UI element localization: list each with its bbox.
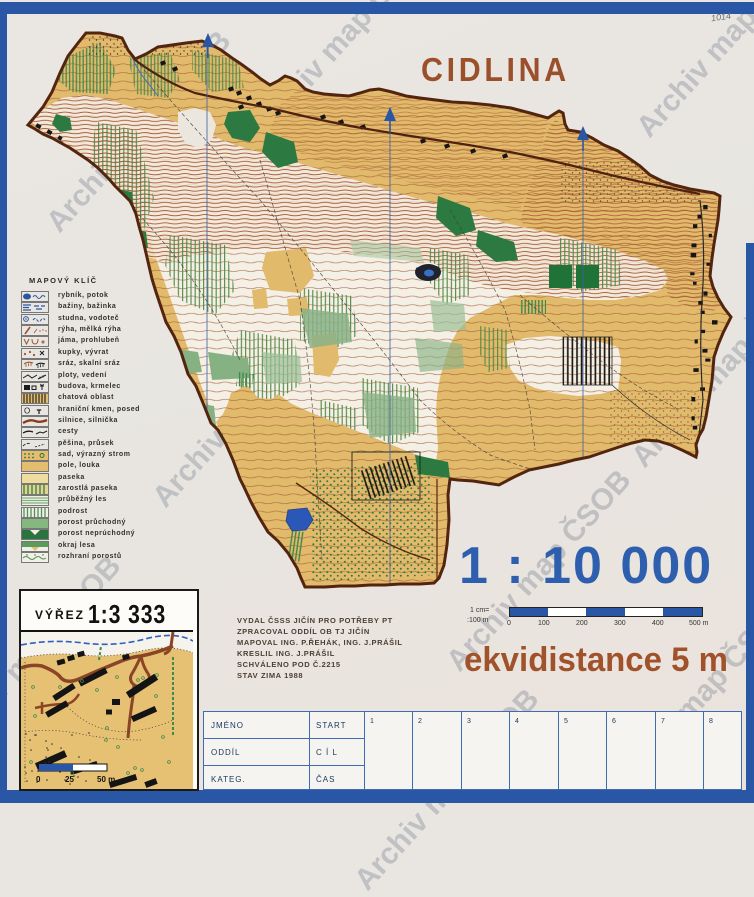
svg-text:0: 0 bbox=[36, 775, 41, 784]
svg-text:O: O bbox=[24, 406, 30, 415]
svg-text:50 m: 50 m bbox=[97, 775, 115, 784]
svg-text:25: 25 bbox=[65, 775, 74, 784]
